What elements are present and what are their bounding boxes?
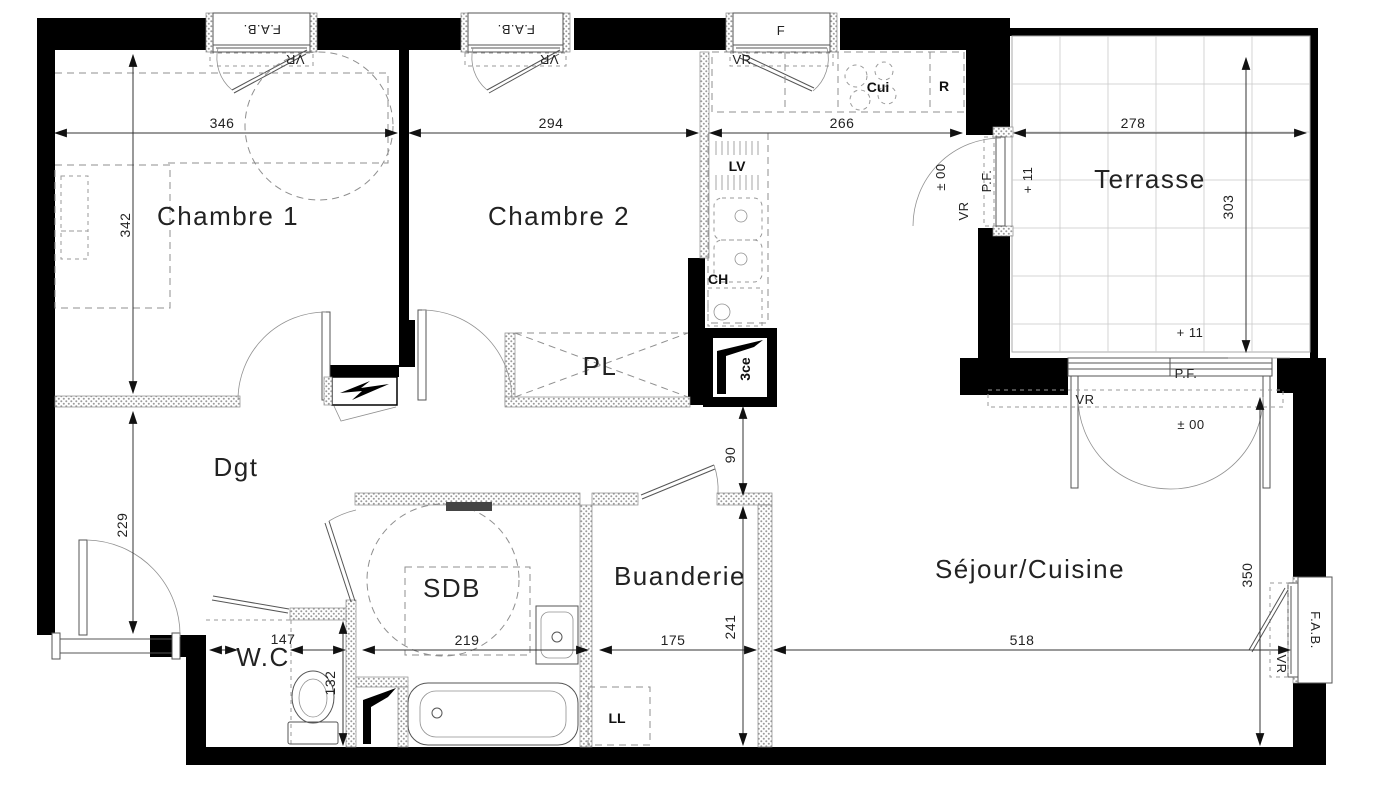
kitchen-sink-icon	[714, 198, 762, 282]
shutter-label-vr-2: VR	[539, 52, 558, 67]
window-label-fab-1: F.A.B.	[243, 22, 281, 37]
dim-living-width: 518	[1010, 632, 1035, 648]
dim-ch2-width: 294	[539, 115, 564, 131]
shutter-label-vr-3: VR	[732, 52, 751, 67]
level-label-terrace-2: + 11	[1177, 325, 1204, 340]
dim-laundry-height: 241	[722, 615, 738, 640]
door-buanderie	[641, 465, 718, 499]
room-label-sdb: SDB	[423, 573, 481, 603]
closet-pl: PL	[515, 333, 688, 397]
window-label-fab-2: F.A.B.	[497, 22, 535, 37]
bed-icon	[55, 165, 170, 308]
dim-dgt-height: 229	[114, 513, 130, 538]
cooktop-label: Cui	[867, 79, 890, 95]
fridge-label: R	[939, 78, 949, 94]
window-label-fab-3: F.A.B.	[1308, 611, 1323, 649]
dim-living-height: 350	[1239, 563, 1255, 588]
door-kitchen-terrace: ± 00 VR P.F.	[913, 127, 1013, 236]
door-label-pf-1: P.F.	[979, 170, 994, 193]
room-label-laundry: Buanderie	[614, 561, 746, 591]
chambre1-furniture	[55, 52, 393, 308]
washer-icon: LL	[588, 687, 650, 745]
window-chambre1: F.A.B. VR	[206, 13, 317, 93]
bathtub-icon	[408, 683, 578, 745]
kitchen-column: LV CH	[708, 133, 768, 326]
closet-label: PL	[583, 351, 618, 381]
door-chambre1	[238, 312, 330, 400]
dim-ch1-width: 346	[210, 115, 235, 131]
dim-laundry-width: 175	[661, 632, 686, 648]
level-label-ground-1: ± 00	[933, 163, 948, 190]
dim-terrace-height: 303	[1220, 195, 1236, 220]
water-heater-icon	[708, 288, 762, 326]
window-label-f: F	[777, 23, 785, 38]
terrace-tile-grid	[1012, 36, 1310, 352]
duct-flag-icon-2	[363, 688, 396, 744]
dim-ch1-height: 342	[117, 213, 133, 238]
cellar-label: 3ce	[737, 357, 753, 381]
room-label-wc: W.C	[236, 642, 290, 672]
window-sejour: F.A.B. VR	[1249, 577, 1332, 683]
cellar-3ce-box: 3ce	[703, 328, 777, 407]
dim-kitchen-width: 266	[830, 115, 855, 131]
floor-plan: F.A.B. VR F.A.B. VR F VR F.A.B. VR	[0, 0, 1374, 800]
door-chambre2	[418, 310, 512, 400]
floor-plan-page: F.A.B. VR F.A.B. VR F VR F.A.B. VR	[0, 0, 1374, 800]
dim-passage: 90	[722, 447, 738, 464]
shutter-label-vr-6: VR	[1075, 392, 1094, 407]
shutter-label-vr-5: VR	[956, 201, 971, 220]
dishwasher-label: LV	[729, 158, 747, 174]
terrace-structure	[1008, 28, 1318, 360]
door-sdb	[325, 510, 356, 602]
water-heater-label: CH	[708, 271, 728, 287]
room-labels: Chambre 1 Chambre 2 Terrasse Dgt SDB W.C…	[157, 164, 1206, 672]
washbasin-icon	[536, 606, 578, 664]
door-sejour-terrace: VR P.F. ± 00 + 11	[988, 325, 1290, 489]
wc-duct	[363, 688, 396, 744]
room-label-terrace: Terrasse	[1094, 164, 1206, 194]
level-label-terrace-1: + 11	[1020, 167, 1035, 194]
dim-wc-height: 132	[322, 671, 338, 696]
level-label-ground-2: ± 00	[1177, 417, 1204, 432]
dim-terrace-width: 278	[1121, 115, 1146, 131]
dim-sdb-width: 219	[455, 632, 480, 648]
window-chambre2: F.A.B. VR	[461, 13, 570, 93]
electrical-panel	[324, 377, 397, 421]
room-label-chambre1: Chambre 1	[157, 201, 299, 231]
room-label-living: Séjour/Cuisine	[935, 554, 1125, 584]
room-label-chambre2: Chambre 2	[488, 201, 630, 231]
terrace-floor	[1012, 36, 1310, 352]
room-label-dgt: Dgt	[214, 452, 259, 482]
turning-circle-ch1	[245, 52, 393, 200]
radiator-icon	[446, 502, 492, 511]
washer-label: LL	[608, 710, 626, 726]
shutter-label-vr-4: VR	[1274, 654, 1289, 673]
door-label-pf-2: P.F.	[1175, 366, 1198, 381]
